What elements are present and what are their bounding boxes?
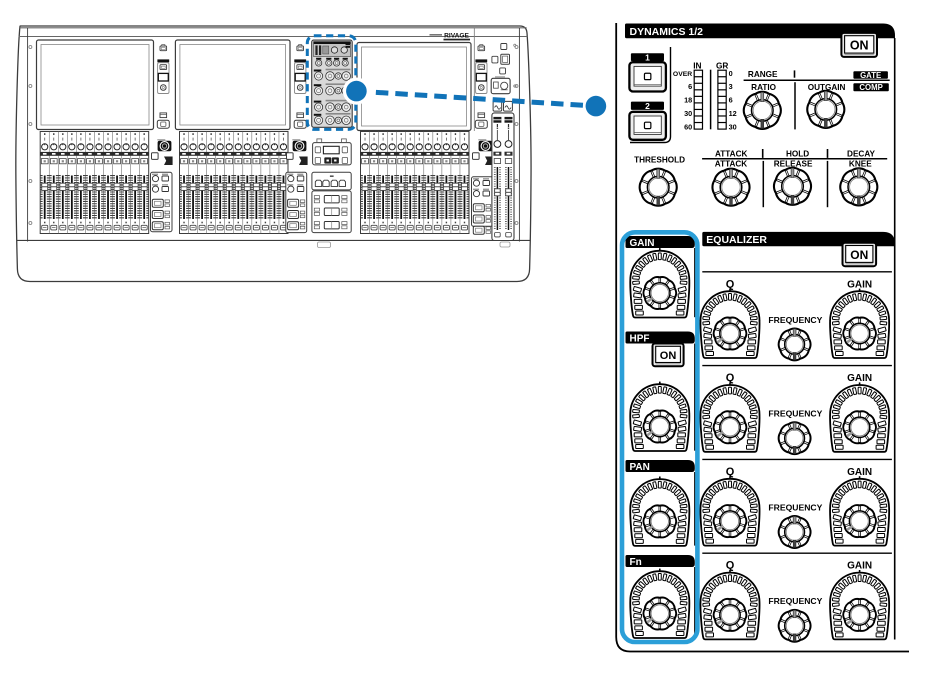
svg-text:FREQUENCY: FREQUENCY	[768, 502, 822, 512]
svg-text:ATTACK: ATTACK	[715, 159, 748, 168]
svg-text:2: 2	[645, 101, 650, 111]
svg-text:ATTACK: ATTACK	[715, 150, 748, 159]
svg-text:GR: GR	[716, 60, 728, 70]
svg-text:FREQUENCY: FREQUENCY	[768, 596, 822, 606]
svg-text:Q: Q	[726, 372, 735, 384]
svg-text:30: 30	[684, 109, 692, 118]
svg-text:RIVAGE: RIVAGE	[444, 33, 469, 40]
svg-text:Fn: Fn	[630, 557, 642, 568]
svg-text:6: 6	[729, 95, 733, 104]
svg-text:DYNAMICS 1/2: DYNAMICS 1/2	[630, 26, 704, 38]
svg-text:HOLD: HOLD	[786, 150, 809, 159]
svg-text:12: 12	[729, 109, 737, 118]
svg-text:FREQUENCY: FREQUENCY	[768, 315, 822, 325]
svg-text:ON: ON	[660, 350, 677, 362]
svg-text:3: 3	[729, 82, 733, 91]
svg-text:KNEE: KNEE	[849, 159, 872, 168]
svg-text:GATE: GATE	[860, 71, 881, 80]
svg-text:Q: Q	[726, 466, 735, 478]
svg-text:ON: ON	[850, 38, 869, 52]
svg-text:THRESHOLD: THRESHOLD	[634, 155, 685, 164]
svg-text:60: 60	[684, 123, 692, 132]
svg-text:6: 6	[688, 82, 692, 91]
svg-text:HPF: HPF	[630, 334, 650, 345]
svg-text:30: 30	[729, 123, 737, 132]
svg-text:Q: Q	[726, 278, 735, 290]
svg-text:PAN: PAN	[630, 462, 650, 473]
svg-text:FREQUENCY: FREQUENCY	[768, 409, 822, 419]
svg-text:Q: Q	[726, 560, 735, 572]
svg-text:18: 18	[684, 95, 692, 104]
svg-text:COMP: COMP	[859, 83, 882, 92]
svg-text:GAIN: GAIN	[630, 238, 655, 249]
svg-text:EQUALIZER: EQUALIZER	[706, 234, 767, 246]
svg-text:ON: ON	[850, 248, 868, 262]
svg-text:RANGE: RANGE	[748, 70, 778, 79]
svg-text:IN: IN	[693, 60, 701, 70]
svg-text:OVER: OVER	[673, 71, 692, 78]
svg-text:DECAY: DECAY	[847, 150, 875, 159]
svg-text:1: 1	[645, 52, 650, 62]
svg-text:0: 0	[729, 69, 733, 78]
